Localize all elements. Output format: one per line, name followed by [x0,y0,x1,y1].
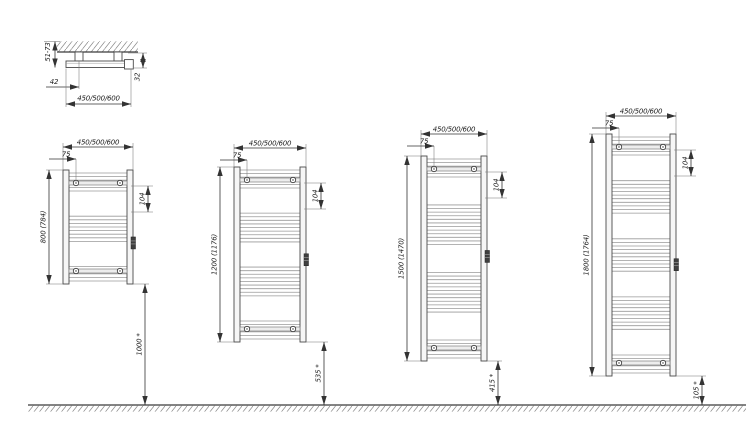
bracket-screw-dot [119,270,120,271]
radiator-plan-body [66,61,131,68]
radiator-front-view-800: 450/500/60075800 (784)1041000 * [40,139,154,406]
side-tube-left [234,167,240,342]
floor-distance-label: 105 * [693,381,701,400]
connection-label: 104 [493,179,501,192]
width-label: 450/500/600 [433,126,476,134]
technical-drawing-canvas: 51-73 42 32 450/500/600 450/500/60075800… [0,0,750,438]
height-label: 800 (784) [40,210,48,243]
depth-label: 32 [134,72,142,81]
bracket-screw-dot [473,168,474,169]
wall-hatching [57,41,138,52]
radiator-dimension-drawing: 51-73 42 32 450/500/600 450/500/60075800… [0,0,750,438]
floor-distance-label: 415 * [489,373,497,392]
width-label: 450/500/600 [249,140,292,148]
inset-label: 75 [62,151,71,159]
width-label: 450/500/600 [77,139,120,147]
height-label: 1800 (1764) [583,234,591,276]
offset-label: 42 [50,78,59,86]
bracket-screw-dot [662,146,663,147]
height-label: 1500 (1470) [398,237,406,279]
radiator-body [234,167,306,342]
top-view: 51-73 42 32 450/500/600 [44,41,147,107]
side-tube-right [670,134,676,376]
connection-label: 104 [139,193,147,206]
connection-label: 104 [312,190,320,203]
connection-label: 104 [682,157,690,170]
bracket-screw-dot [119,182,120,183]
floor-distance-label: 535 * [315,364,323,383]
wall-clearance-label: 51-73 [44,42,52,61]
bracket-screw-dot [292,328,293,329]
valve [131,237,136,249]
valve [674,259,679,271]
inset-label: 75 [233,152,242,160]
wall-bracket-right [114,52,122,61]
bracket-screw-dot [662,362,663,363]
valve [304,254,309,266]
radiator-front-view-1500: 450/500/600751500 (1470)104415 * [398,126,508,406]
floor-distance-label: 1000 * [136,333,144,356]
radiator-plan-endcap [125,60,134,69]
width-label: 450/500/600 [620,108,663,116]
side-tube-left [63,170,69,284]
bracket-screw-dot [75,270,76,271]
floor [28,405,746,412]
bracket-screw-dot [246,328,247,329]
side-tube-left [606,134,612,376]
bracket-screw-dot [473,347,474,348]
radiator-front-view-1200: 450/500/600751200 (1176)104535 * [211,140,329,406]
wall-bracket-left [75,52,83,61]
bracket-screw-dot [618,362,619,363]
radiator-body [421,156,487,361]
inset-label: 75 [605,120,614,128]
valve [485,250,490,262]
bracket-screw-dot [292,179,293,180]
side-tube-left [421,156,427,361]
radiator-body [606,134,676,376]
bracket-screw-dot [433,347,434,348]
height-label: 1200 (1176) [211,233,219,275]
side-tube-right [127,170,133,284]
plan-width-label: 450/500/600 [77,95,120,103]
radiator-front-view-1800: 450/500/600751800 (1764)104105 * [583,108,707,406]
floor-hatching [28,405,746,411]
inset-label: 75 [420,138,429,146]
